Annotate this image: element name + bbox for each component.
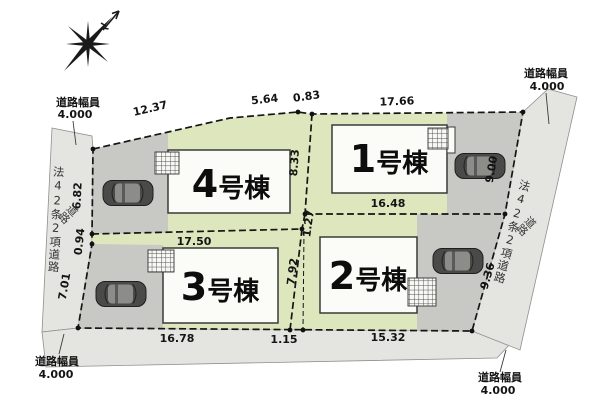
dim-top-seg1: 12.37: [132, 98, 169, 118]
svg-text:4.000: 4.000: [530, 80, 565, 93]
svg-text:4.000: 4.000: [58, 108, 93, 121]
compass-star-icon: [66, 42, 110, 46]
svg-text:道路幅員: 道路幅員: [478, 370, 522, 384]
porch-grid-lot2: [408, 278, 436, 306]
porch-grid-lot1: [428, 128, 448, 149]
car-icon: [103, 181, 153, 206]
site-plan-drawing: 4号棟 1号棟 3号棟 2号棟 12.37 5.64 0.83 17.66 6.…: [0, 0, 600, 409]
svg-text:4.000: 4.000: [481, 384, 516, 397]
dim-lot2-bottom: 15.32: [371, 331, 406, 344]
porch-grid-lot4: [155, 152, 179, 174]
dim-top-seg2: 5.64: [250, 92, 279, 108]
dim-divider-833: 8.33: [287, 149, 302, 177]
svg-text:道路幅員: 道路幅員: [56, 95, 100, 109]
dim-lot1-top: 17.66: [379, 94, 415, 108]
svg-text:4.000: 4.000: [39, 368, 74, 381]
svg-text:道路幅員: 道路幅員: [35, 354, 79, 368]
dim-lot1-bottom: 16.48: [371, 197, 406, 210]
site-plan-page: 4号棟 1号棟 3号棟 2号棟 12.37 5.64 0.83 17.66 6.…: [0, 0, 600, 409]
svg-text:道路幅員: 道路幅員: [524, 66, 568, 80]
compass: [64, 11, 119, 71]
dim-bottom-jog: 1.15: [270, 333, 297, 346]
porch-grid-lot3: [148, 250, 174, 272]
car-icon: [433, 249, 483, 274]
dim-lot3-bottom: 16.78: [160, 332, 195, 345]
dim-lot3-top: 17.50: [177, 235, 212, 248]
car-icon: [96, 282, 146, 307]
dim-top-seg3: 0.83: [292, 88, 321, 105]
